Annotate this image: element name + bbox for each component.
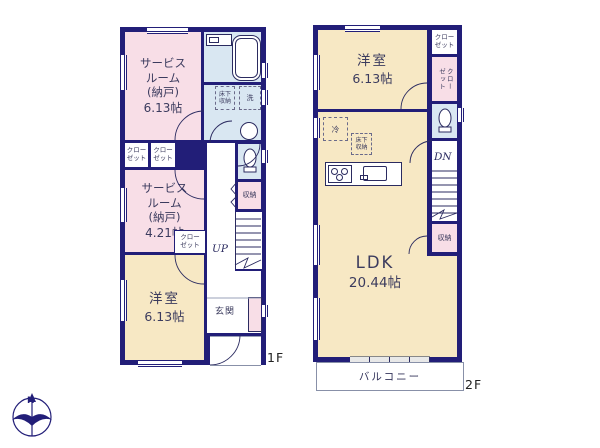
window: [313, 118, 320, 138]
window: [457, 108, 464, 122]
underfloor-storage-label: 床下 収納: [355, 137, 367, 151]
stove-icon: [328, 165, 352, 183]
room-size: 20.44帖: [333, 275, 417, 292]
window: [120, 55, 127, 90]
window: [345, 25, 380, 32]
shoe-cabinet: [248, 297, 262, 332]
closet: クロー ゼット: [174, 230, 205, 253]
storage-2f: 収納: [432, 224, 457, 252]
toilet-room-2f: [432, 104, 457, 138]
window: [120, 188, 127, 222]
up-label: UP: [212, 243, 228, 255]
underfloor-storage-2f: 床下 収納: [351, 133, 372, 155]
vanity-icon: [206, 34, 232, 46]
room-label: 洋室: [149, 291, 180, 308]
floor-plan-canvas: サービス ルーム (納戸) 6.13帖 クロー ゼット クロー ゼット サービス…: [0, 0, 600, 448]
closet-label: クロー ゼット: [435, 34, 455, 50]
balcony: バルコニー: [316, 362, 464, 391]
north-label: N: [27, 396, 35, 406]
closet-label: クロー ゼット: [153, 147, 173, 163]
window: [261, 90, 268, 105]
window: [120, 280, 127, 321]
bathtub-icon: [232, 35, 261, 81]
room-western-2f: 洋室 6.13帖: [318, 30, 427, 109]
closet: クロー ゼット: [432, 30, 457, 54]
washer-label: 洗: [247, 94, 254, 102]
floor2-label: 2F: [465, 377, 482, 392]
ldk-label-group: LDK 20.44帖: [333, 253, 417, 292]
storage-label: 収納: [243, 191, 257, 199]
room-size: 6.13帖: [144, 101, 183, 116]
washbasin-icon: [240, 122, 258, 140]
room-label: 洋室: [357, 53, 388, 70]
window: [147, 27, 188, 34]
storage-label: 収納: [438, 234, 452, 242]
closet-label: クローゼット: [437, 66, 453, 92]
fridge-box: 冷: [323, 117, 348, 141]
closet-label: クロー ゼット: [180, 234, 200, 250]
floor1-label: 1F: [267, 350, 284, 365]
underfloor-storage-label: 床下 収納: [219, 91, 231, 105]
window: [313, 55, 320, 90]
kitchen-counter: [325, 162, 402, 186]
sink-icon: [363, 166, 387, 181]
window: [313, 298, 320, 340]
window: [261, 305, 268, 317]
room-ldk: [318, 112, 427, 357]
window: [261, 150, 268, 163]
room-label: LDK: [333, 253, 417, 274]
room-size: 6.13帖: [144, 309, 184, 325]
dn-label: DN: [434, 151, 452, 163]
stairs-up: [235, 212, 262, 269]
washer-box: 洗: [239, 86, 261, 110]
window: [138, 360, 182, 367]
closet: クローゼット: [432, 57, 457, 101]
window: [313, 225, 320, 265]
room-size: 6.13帖: [352, 71, 392, 87]
room-western-1f: 洋室 6.13帖: [125, 255, 204, 360]
toilet-room-1f: [238, 144, 261, 179]
balcony-label: バルコニー: [359, 369, 421, 384]
entrance-label: 玄関: [208, 304, 242, 317]
entrance-porch: [210, 336, 261, 366]
closet-label: クロー ゼット: [127, 147, 147, 163]
room-ldk-extension: [427, 256, 457, 357]
room-service-1: サービス ルーム (納戸) 6.13帖: [125, 32, 201, 140]
underfloor-storage-1f: 床下 収納: [215, 86, 235, 110]
room-label: サービス ルーム (納戸): [142, 181, 188, 224]
plan-1f: サービス ルーム (納戸) 6.13帖 クロー ゼット クロー ゼット サービス…: [120, 27, 266, 365]
closet: クロー ゼット: [151, 143, 175, 167]
fridge-label: 冷: [332, 125, 340, 134]
storage-1f: 収納: [238, 182, 261, 209]
plan-2f: 洋室 6.13帖 クロー ゼット クローゼット DN 収納 LDK 20.44帖: [313, 25, 462, 362]
closet: クロー ゼット: [125, 143, 148, 167]
window: [261, 63, 268, 78]
room-label: サービス ルーム (納戸): [140, 56, 186, 99]
